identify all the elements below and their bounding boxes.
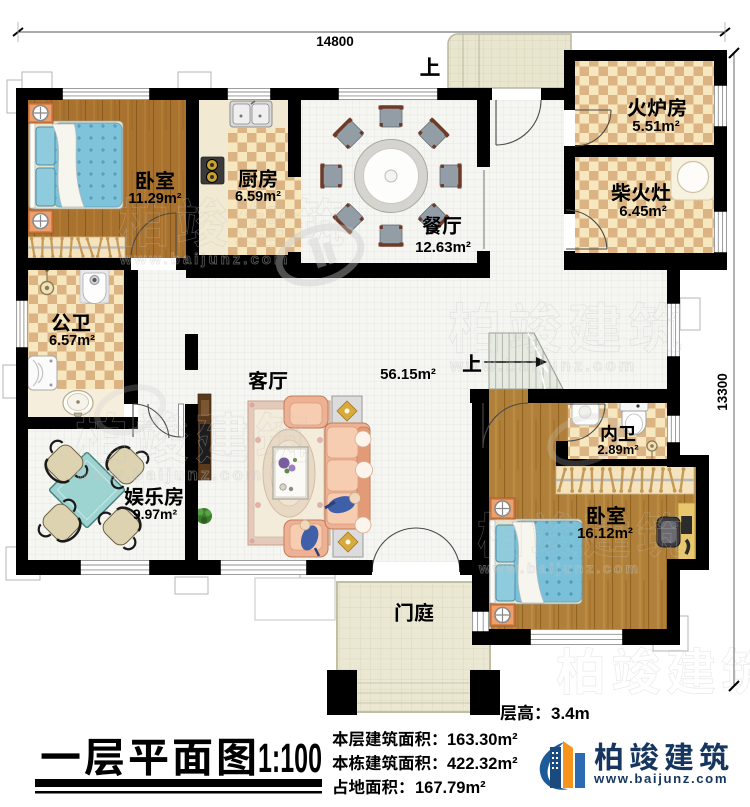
- svg-text:11.29m²: 11.29m²: [128, 191, 181, 207]
- svg-text:www.baijunz.com: www.baijunz.com: [478, 560, 641, 576]
- svg-text:6.57m²: 6.57m²: [49, 333, 95, 349]
- svg-text:16.12m²: 16.12m²: [577, 525, 633, 542]
- svg-text:13300: 13300: [715, 373, 730, 411]
- svg-text:1:100: 1:100: [258, 735, 322, 781]
- svg-text:14800: 14800: [316, 34, 354, 49]
- svg-text:167.79m²: 167.79m²: [415, 779, 486, 797]
- svg-text:163.30m²: 163.30m²: [447, 731, 518, 749]
- svg-text:422.32m²: 422.32m²: [447, 755, 518, 773]
- svg-text:9.97m²: 9.97m²: [133, 506, 178, 522]
- svg-text:www.baijunz.com: www.baijunz.com: [449, 356, 637, 375]
- svg-text:56.15m²: 56.15m²: [380, 366, 436, 383]
- svg-text:6.59m²: 6.59m²: [235, 189, 281, 205]
- svg-text:www.baijunz.com: www.baijunz.com: [76, 465, 264, 484]
- svg-text:www.baijunz.com: www.baijunz.com: [119, 251, 290, 268]
- svg-text:3.4m: 3.4m: [551, 704, 590, 723]
- svg-text:www.baijunz.com: www.baijunz.com: [593, 771, 728, 786]
- svg-text:5.51m²: 5.51m²: [632, 118, 680, 135]
- svg-text:12.63m²: 12.63m²: [415, 239, 471, 256]
- svg-text:2.89m²: 2.89m²: [597, 442, 639, 457]
- svg-text:6.45m²: 6.45m²: [619, 203, 667, 220]
